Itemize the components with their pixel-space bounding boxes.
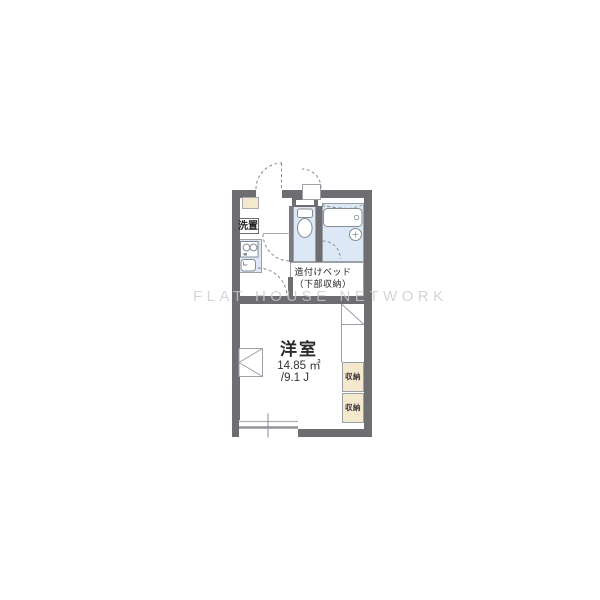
wall-right	[364, 198, 372, 437]
pipe-space-inset	[296, 200, 314, 205]
storage-lower-label: 収納	[342, 404, 364, 413]
bathroom	[322, 203, 364, 262]
wall-left	[232, 198, 240, 437]
storage-upper-label: 収納	[342, 373, 364, 382]
toilet-room	[293, 206, 316, 262]
floor-plan: 洗置 洋室 14.85 ㎡ /9.1 J 造付けベッド （下部収納） 収納 収納…	[0, 0, 600, 600]
window-opening	[239, 420, 298, 437]
entrance-opening	[256, 190, 282, 198]
laundry-label: 洗置	[237, 221, 259, 233]
main-room-area-tatami: /9.1 J	[260, 372, 330, 385]
entrance-door-arc	[256, 163, 282, 189]
toilet-door-arc	[263, 234, 290, 262]
wall-toilet-bath	[316, 206, 322, 262]
main-room-name: 洋室	[264, 340, 334, 360]
shoe-box	[242, 197, 259, 209]
bed-label-line1: 造付けベッド	[283, 267, 363, 277]
refrigerator-space	[342, 304, 365, 362]
folding-table-icon	[239, 349, 263, 377]
watermark-text: FLAT HOUSE NETWORK	[193, 288, 448, 305]
wall-toilet-left	[289, 206, 293, 262]
outdoor-closet-box	[302, 184, 321, 200]
kitchen-counter	[238, 239, 262, 273]
